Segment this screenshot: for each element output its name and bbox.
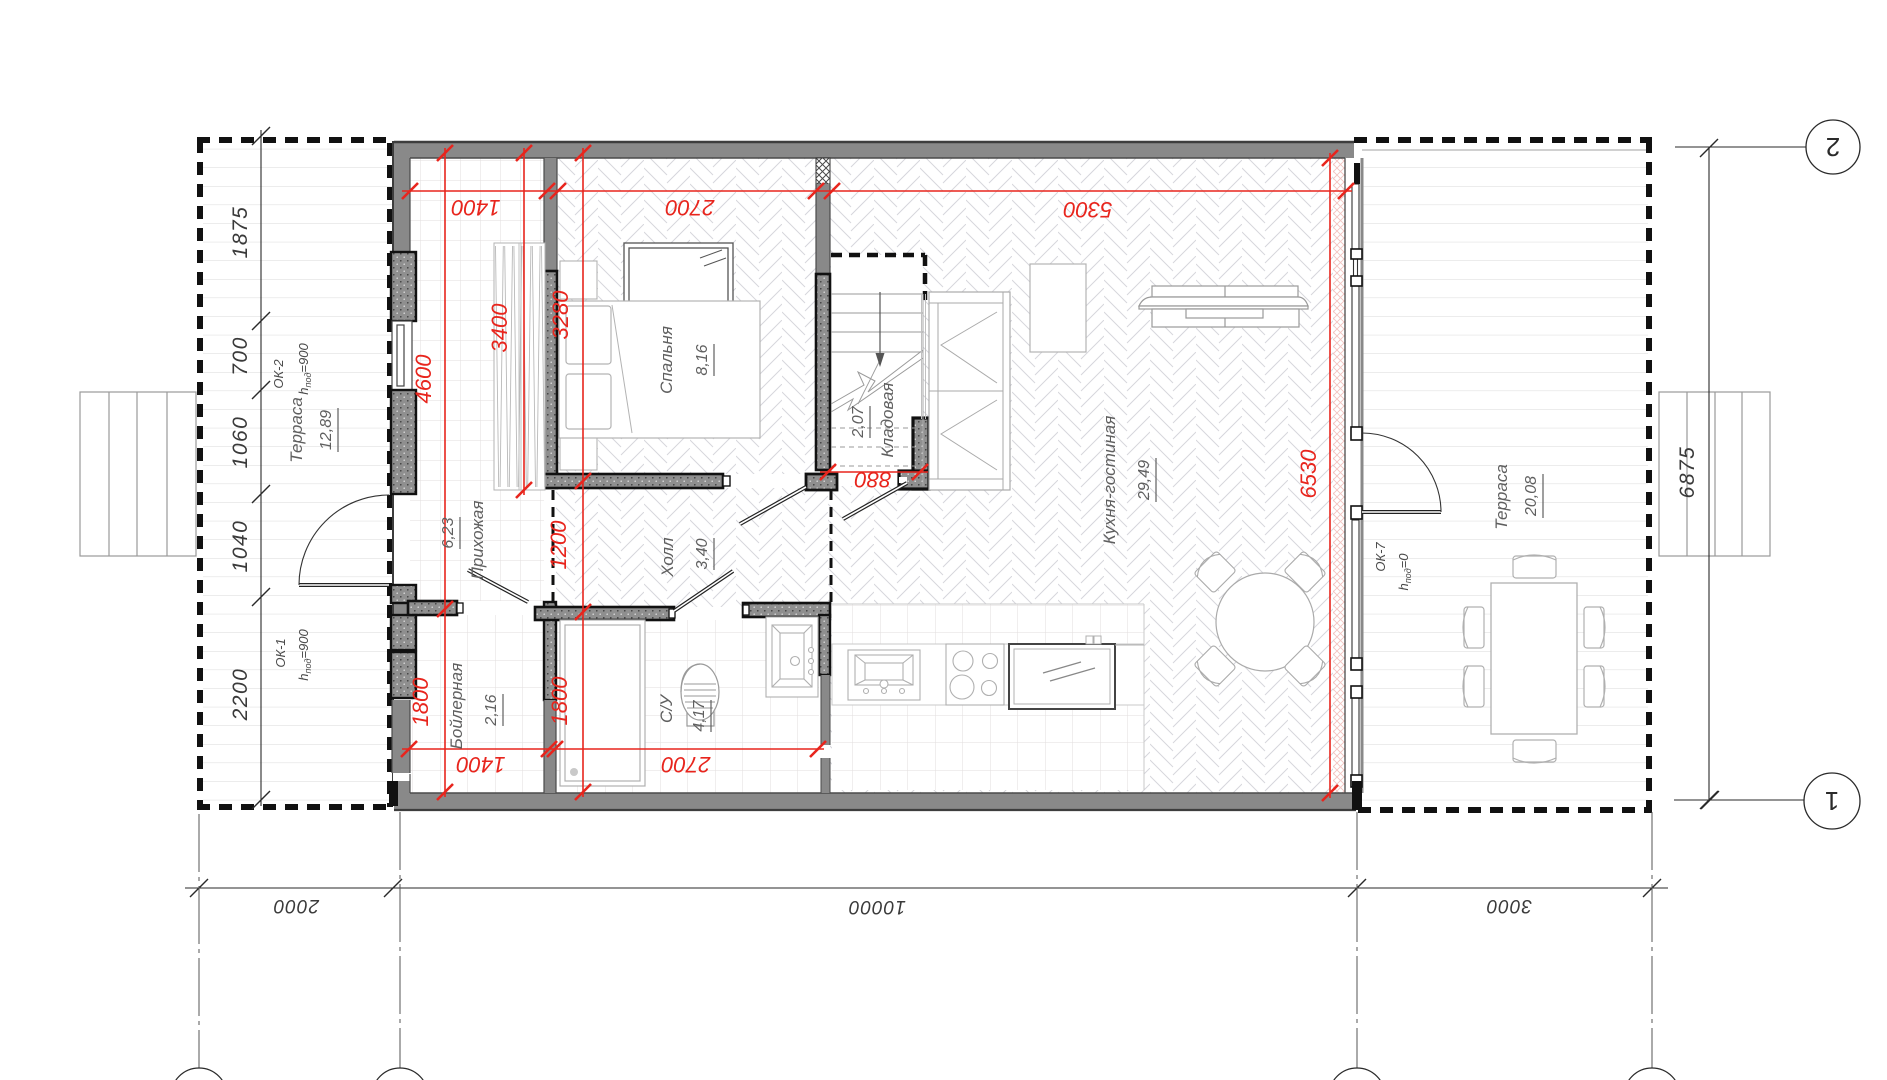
svg-text:6875: 6875 bbox=[1676, 446, 1699, 499]
svg-text:3,40: 3,40 bbox=[694, 538, 711, 569]
svg-text:1800: 1800 bbox=[547, 676, 572, 726]
svg-text:880: 880 bbox=[854, 467, 891, 492]
svg-text:3400: 3400 bbox=[487, 303, 512, 353]
svg-text:1800: 1800 bbox=[408, 677, 433, 727]
svg-text:1875: 1875 bbox=[229, 206, 252, 259]
svg-text:20,08: 20,08 bbox=[1523, 476, 1540, 517]
svg-text:Кухня-гостиная: Кухня-гостиная bbox=[1100, 416, 1119, 545]
svg-text:6530: 6530 bbox=[1296, 449, 1321, 499]
svg-text:1040: 1040 bbox=[229, 520, 252, 573]
svg-text:ОК-7: ОК-7 bbox=[1373, 542, 1388, 572]
svg-text:6,23: 6,23 bbox=[440, 517, 457, 548]
svg-text:Спальня: Спальня bbox=[657, 326, 676, 394]
svg-text:ОК-2: ОК-2 bbox=[271, 359, 286, 389]
svg-text:2700: 2700 bbox=[661, 752, 712, 777]
svg-text:Бойлерная: Бойлерная bbox=[447, 663, 466, 749]
svg-text:С/У: С/У bbox=[657, 693, 676, 723]
svg-text:2,07: 2,07 bbox=[850, 405, 867, 438]
svg-text:2: 2 bbox=[1826, 132, 1840, 162]
svg-text:3280: 3280 bbox=[548, 290, 573, 340]
svg-text:2000: 2000 bbox=[273, 895, 320, 916]
svg-text:8,16: 8,16 bbox=[694, 344, 711, 375]
svg-text:5300: 5300 bbox=[1063, 197, 1113, 222]
svg-text:ОК-1: ОК-1 bbox=[273, 638, 288, 667]
svg-text:1: 1 bbox=[1825, 786, 1839, 816]
svg-text:12,89: 12,89 bbox=[318, 410, 335, 450]
svg-text:1060: 1060 bbox=[229, 416, 252, 469]
svg-text:2700: 2700 bbox=[665, 195, 716, 220]
svg-text:Терраса: Терраса bbox=[1492, 464, 1511, 530]
svg-text:10000: 10000 bbox=[848, 896, 906, 917]
svg-text:Кладовая: Кладовая bbox=[878, 383, 897, 458]
svg-text:4600: 4600 bbox=[411, 354, 436, 404]
svg-text:Холл: Холл bbox=[658, 537, 677, 578]
svg-text:1400: 1400 bbox=[451, 195, 501, 220]
svg-text:Терраса: Терраса bbox=[287, 397, 306, 463]
svg-text:1200: 1200 bbox=[546, 520, 571, 570]
svg-text:2200: 2200 bbox=[229, 668, 252, 722]
svg-text:Прихожая: Прихожая bbox=[468, 501, 487, 580]
svg-text:2,16: 2,16 bbox=[483, 694, 500, 726]
svg-text:1400: 1400 bbox=[456, 752, 506, 777]
svg-text:700: 700 bbox=[229, 336, 252, 376]
svg-text:29,49: 29,49 bbox=[1136, 460, 1153, 501]
svg-text:4,17: 4,17 bbox=[691, 699, 708, 731]
svg-text:3000: 3000 bbox=[1486, 895, 1532, 916]
